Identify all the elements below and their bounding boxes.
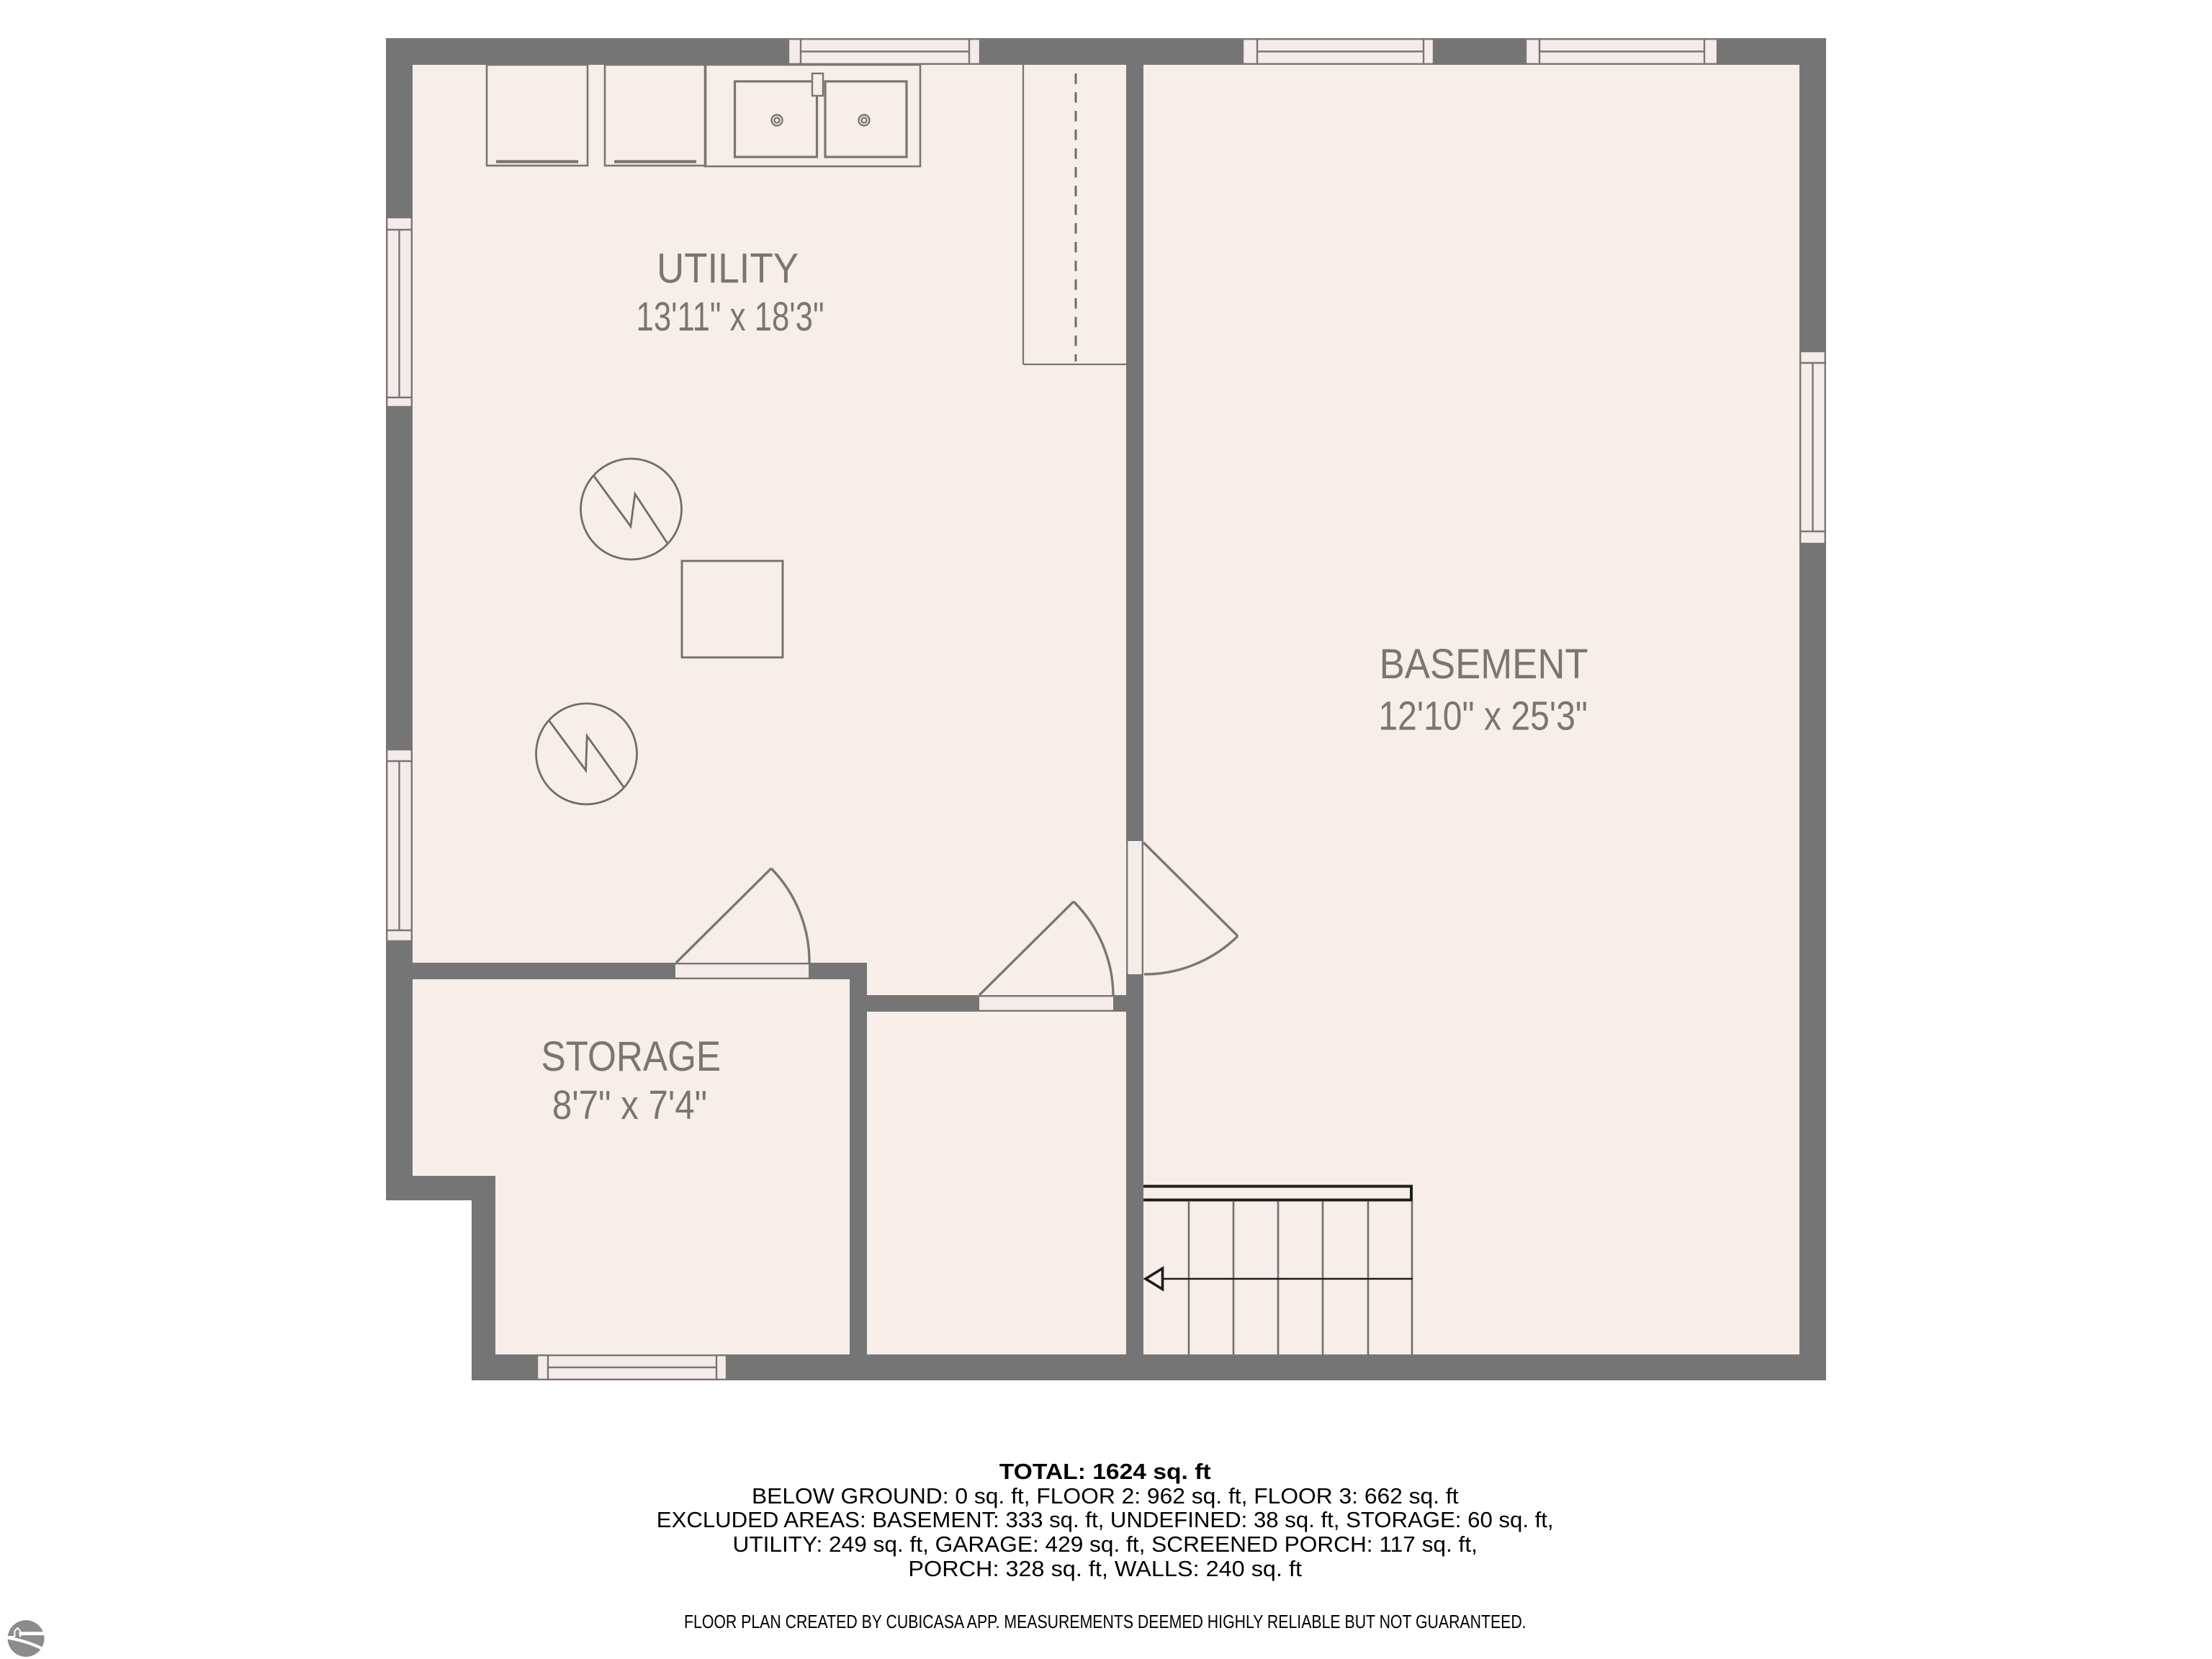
- svg-text:TOTAL: 1624 sq. ft: TOTAL: 1624 sq. ft: [999, 1459, 1211, 1484]
- svg-text:BELOW GROUND: 0 sq. ft, FLOOR: BELOW GROUND: 0 sq. ft, FLOOR 2: 962 sq.…: [752, 1483, 1459, 1509]
- svg-text:BASEMENT: BASEMENT: [1380, 641, 1588, 688]
- svg-text:STORAGE: STORAGE: [541, 1033, 721, 1080]
- svg-text:UTILITY: UTILITY: [657, 246, 799, 292]
- svg-text:FLOOR PLAN CREATED BY CUBICASA: FLOOR PLAN CREATED BY CUBICASA APP. MEAS…: [684, 1611, 1527, 1632]
- svg-text:EXCLUDED AREAS: BASEMENT: 333: EXCLUDED AREAS: BASEMENT: 333 sq. ft, UN…: [657, 1507, 1554, 1532]
- svg-text:13'11" x 18'3": 13'11" x 18'3": [637, 294, 824, 339]
- svg-text:12'10" x 25'3": 12'10" x 25'3": [1378, 693, 1587, 739]
- svg-text:8'7" x 7'4": 8'7" x 7'4": [552, 1082, 707, 1128]
- svg-text:UTILITY: 249 sq. ft, GARAGE: 4: UTILITY: 249 sq. ft, GARAGE: 429 sq. ft,…: [733, 1532, 1478, 1557]
- svg-text:PORCH: 328 sq. ft, WALLS: 240: PORCH: 328 sq. ft, WALLS: 240 sq. ft: [908, 1556, 1302, 1581]
